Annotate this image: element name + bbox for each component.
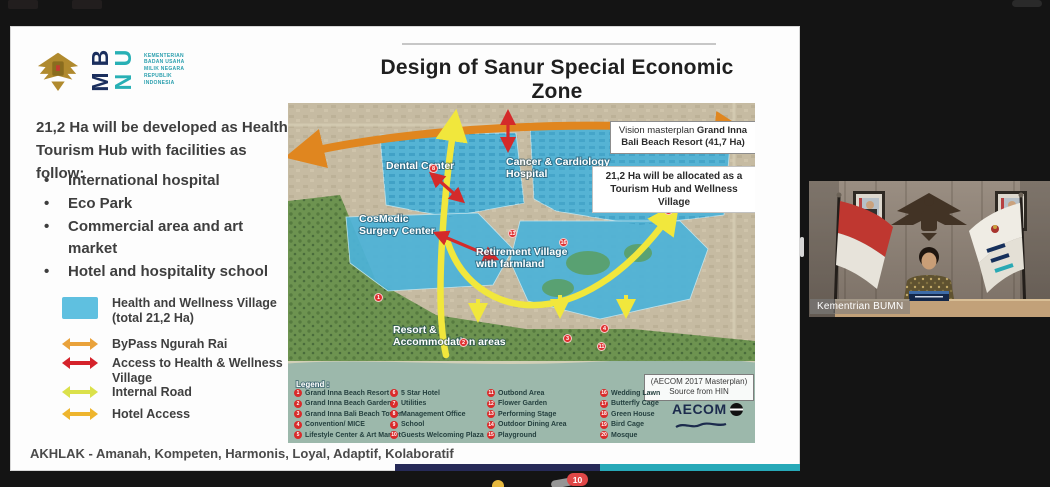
legend-item-label: Utilities bbox=[401, 400, 426, 407]
legend-number: 9 bbox=[390, 421, 398, 429]
bumn-letter: U bbox=[110, 50, 135, 67]
bullet-item: Eco Park bbox=[38, 193, 294, 215]
legend-number: 5 bbox=[294, 431, 302, 439]
legend-number: 4 bbox=[294, 421, 302, 429]
legend-row-internal-road: Internal Road bbox=[60, 385, 290, 400]
legend-number: 15 bbox=[487, 431, 495, 439]
desk-name-plate bbox=[909, 291, 949, 301]
map-legend-col-3: 11Outbond Area 12Flower Garden 13Perform… bbox=[487, 389, 567, 439]
legend-row-hotel-access: Hotel Access bbox=[60, 407, 290, 422]
label-cosmedic-line2: Surgery Center bbox=[359, 225, 435, 237]
reaction-emoji-icon[interactable] bbox=[492, 480, 504, 487]
label-retirement-line2: with farmland bbox=[475, 258, 544, 270]
legend-label: Hotel Access bbox=[112, 407, 190, 422]
map-legend-title: Legend : bbox=[296, 380, 329, 389]
garuda-pancasila-icon bbox=[36, 46, 80, 94]
callout-prefix: Vision masterplan bbox=[619, 125, 697, 136]
ministry-line: MILIK NEGARA bbox=[144, 67, 185, 73]
site-marker: 8 bbox=[429, 164, 438, 173]
double-arrow-icon bbox=[60, 407, 100, 421]
site-marker: 11 bbox=[597, 342, 606, 351]
video-strip-scrollbar[interactable] bbox=[800, 237, 804, 257]
bullet-item: International hospital bbox=[38, 170, 294, 192]
legend-item-label: Butterfly Cage bbox=[611, 400, 659, 407]
label-resort-line2: Accommodation areas bbox=[393, 336, 506, 348]
legend-item-label: 5 Star Hotel bbox=[401, 390, 440, 397]
ministry-line: INDONESIA bbox=[144, 81, 185, 87]
legend-row-bypass: ByPass Ngurah Rai bbox=[60, 337, 290, 352]
slide-accent-stripe-teal bbox=[600, 464, 800, 471]
legend-item-label: Management Office bbox=[401, 411, 466, 418]
label-resort-line1: Resort & bbox=[393, 324, 437, 336]
bullet-item: Hotel and hospitality school bbox=[38, 261, 294, 283]
legend-label: Health and Wellness Village (total 21,2 … bbox=[112, 296, 290, 326]
aecom-wordmark: AECOM bbox=[672, 401, 727, 417]
aecom-wave-icon bbox=[672, 420, 728, 430]
site-marker: 16 bbox=[559, 238, 568, 247]
masterplan-map: Dental Center Cancer & Cardiology Hospit… bbox=[288, 103, 755, 443]
blue-swatch-icon bbox=[60, 296, 100, 320]
legend-item-label: Grand Inna Bali Beach Tower bbox=[305, 411, 402, 418]
meeting-screen: B U M N KEMENTERIAN BADAN USAHA MILIK NE… bbox=[0, 0, 1050, 487]
site-marker: 2 bbox=[459, 338, 468, 347]
legend-item-label: Bird Cage bbox=[611, 421, 644, 428]
legend-number: 14 bbox=[487, 421, 495, 429]
credit-line: (AECOM 2017 Masterplan) bbox=[645, 377, 753, 387]
legend-number: 10 bbox=[390, 431, 398, 439]
legend-number: 20 bbox=[600, 431, 608, 439]
map-legend-col-4: 16Wedding Lawn 17Butterfly Cage 18Green … bbox=[600, 389, 660, 439]
reaction-count-badge: 10 bbox=[567, 473, 588, 486]
legend-number: 8 bbox=[390, 410, 398, 418]
legend-number: 19 bbox=[600, 421, 608, 429]
legend-item-label: Grand Inna Beach Resort bbox=[305, 390, 389, 397]
legend-number: 2 bbox=[294, 400, 302, 408]
video-scene bbox=[809, 181, 1050, 317]
legend-row-access: Access to Health & Wellness Village bbox=[60, 356, 290, 386]
legend-item-label: Wedding Lawn bbox=[611, 390, 660, 397]
label-cancer-line2: Hospital bbox=[506, 168, 548, 180]
title-rule bbox=[402, 43, 716, 45]
site-marker: 1 bbox=[374, 293, 383, 302]
participant-name-label: Kementrian BUMN bbox=[810, 299, 910, 314]
double-arrow-icon bbox=[60, 356, 100, 370]
legend-number: 3 bbox=[294, 410, 302, 418]
label-retirement-line1: Retirement Village bbox=[476, 246, 568, 258]
legend-item-label: Green House bbox=[611, 411, 655, 418]
bullet-item: Commercial area and art market bbox=[38, 216, 294, 260]
titlebar-remnant-right bbox=[72, 0, 102, 9]
legend-item-label: Mosque bbox=[611, 432, 637, 439]
double-arrow-icon bbox=[60, 385, 100, 399]
legend-number: 16 bbox=[600, 389, 608, 397]
legend-label: Internal Road bbox=[112, 385, 192, 400]
site-marker: 13 bbox=[508, 229, 517, 238]
map-credit-box: (AECOM 2017 Masterplan) Source from HIN bbox=[644, 374, 754, 401]
legend-number: 7 bbox=[390, 400, 398, 408]
aecom-logo: AECOM bbox=[672, 401, 752, 435]
label-cosmedic-line1: CosMedic bbox=[359, 213, 409, 225]
legend-number: 18 bbox=[600, 410, 608, 418]
titlebar-remnant-left bbox=[8, 0, 38, 9]
ministry-logo-block: B U M N KEMENTERIAN BADAN USAHA MILIK NE… bbox=[36, 46, 185, 94]
legend-number: 11 bbox=[487, 389, 495, 397]
legend-item-label: Flower Garden bbox=[498, 400, 547, 407]
credit-line: Source from HIN bbox=[645, 387, 753, 397]
legend-label: Access to Health & Wellness Village bbox=[112, 356, 290, 386]
callout-vision-masterplan: Vision masterplan Grand Inna Bali Beach … bbox=[610, 121, 755, 154]
slide-title: Design of Sanur Special Economic Zone bbox=[357, 56, 757, 104]
callout-allocation: 21,2 Ha will be allocated as a Tourism H… bbox=[592, 166, 755, 213]
legend-item-label: Guests Welcoming Plaza bbox=[401, 432, 484, 439]
legend-item-label: Convention/ MICE bbox=[305, 421, 365, 428]
site-marker: 4 bbox=[600, 324, 609, 333]
site-marker: 3 bbox=[563, 334, 572, 343]
window-corner-control[interactable] bbox=[1012, 0, 1042, 7]
legend-item-label: Lifestyle Center & Art Market bbox=[305, 432, 401, 439]
akhlak-footer: AKHLAK - Amanah, Kompeten, Harmonis, Loy… bbox=[30, 446, 454, 461]
aecom-globe-icon bbox=[730, 403, 743, 416]
map-legend-col-1: 1Grand Inna Beach Resort 2Grand Inna Bea… bbox=[294, 389, 402, 439]
legend-item-label: Grand Inna Beach Garden bbox=[305, 400, 391, 407]
label-dental-center: Dental Center bbox=[386, 160, 454, 172]
legend-label: ByPass Ngurah Rai bbox=[112, 337, 227, 352]
bumn-logo-icon: B U M N bbox=[89, 46, 135, 94]
ministry-line: REPUBLIK bbox=[144, 74, 185, 80]
map-legend-col-2: 65 Star Hotel 7Utilities 8Management Off… bbox=[390, 389, 484, 439]
legend-number: 1 bbox=[294, 389, 302, 397]
legend-row-wellness-village: Health and Wellness Village (total 21,2 … bbox=[60, 296, 290, 326]
legend-item-label: Outdoor Dining Area bbox=[498, 421, 567, 428]
legend-number: 17 bbox=[600, 400, 608, 408]
callout-bold: 21,2 Ha will be allocated as a Tourism H… bbox=[606, 171, 743, 208]
double-arrow-icon bbox=[60, 337, 100, 351]
legend-item-label: School bbox=[401, 421, 424, 428]
legend-number: 13 bbox=[487, 410, 495, 418]
facility-bullet-list: International hospital Eco Park Commerci… bbox=[38, 170, 294, 284]
legend-number: 12 bbox=[487, 400, 495, 408]
ministry-name-lines: KEMENTERIAN BADAN USAHA MILIK NEGARA REP… bbox=[144, 54, 185, 87]
bumn-letter: N bbox=[110, 74, 135, 91]
legend-item-label: Outbond Area bbox=[498, 390, 544, 397]
slide-accent-stripe-navy bbox=[395, 464, 600, 471]
legend-item-label: Playground bbox=[498, 432, 537, 439]
participant-video-tile[interactable]: Kementrian BUMN bbox=[809, 181, 1050, 317]
legend-item-label: Performing Stage bbox=[498, 411, 556, 418]
legend-number: 6 bbox=[390, 389, 398, 397]
